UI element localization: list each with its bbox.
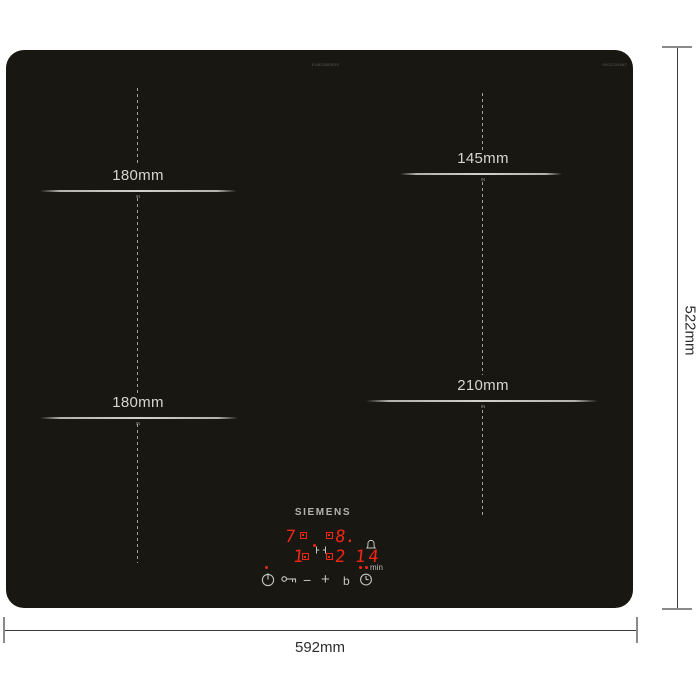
height-dimension-tick-top bbox=[662, 46, 692, 48]
front-right-crosshair-bottom bbox=[482, 410, 483, 517]
rear-right-zone-label: 145mm bbox=[421, 150, 545, 167]
width-dimension-line bbox=[4, 630, 637, 631]
power-indicator-dot bbox=[265, 566, 268, 569]
control-panel: SIEMENS 7 8. 1 2 14 min bbox=[255, 505, 400, 603]
front-right-zone-select-icon bbox=[326, 553, 333, 560]
rear-left-zone-line bbox=[40, 190, 237, 192]
power-icon bbox=[260, 571, 276, 587]
rear-left-zone-marking: IN bbox=[131, 194, 145, 199]
width-dimension-tick-right bbox=[636, 617, 638, 643]
child-lock-key-icon bbox=[281, 573, 299, 585]
timer-indicator-dot bbox=[365, 566, 368, 569]
rear-right-crosshair-top bbox=[482, 93, 483, 150]
product-diagram: EU631BEB1E 9001234567 180mm IN 145mm IN … bbox=[0, 0, 700, 700]
front-right-zone-label: 210mm bbox=[421, 377, 545, 394]
rear-left-level-display: 7 bbox=[284, 529, 296, 546]
front-right-zone-line bbox=[366, 400, 598, 402]
brand-logo: SIEMENS bbox=[283, 507, 363, 518]
front-left-zone-select-icon bbox=[302, 553, 309, 560]
boost-key: b bbox=[343, 575, 350, 587]
timer-clock-icon bbox=[358, 571, 374, 587]
model-code: EU631BEB1E bbox=[312, 62, 340, 67]
plus-key: + bbox=[321, 572, 330, 587]
front-left-zone-marking: IN bbox=[131, 421, 145, 426]
minute-indicator-dot bbox=[359, 566, 362, 569]
front-left-zone-line bbox=[40, 417, 238, 419]
left-crosshair-middle bbox=[137, 198, 138, 393]
rear-left-crosshair-top bbox=[137, 88, 138, 166]
width-dimension-label: 592mm bbox=[258, 639, 382, 656]
rear-right-zone-select-icon bbox=[326, 532, 333, 539]
rear-right-zone-marking: IN bbox=[476, 177, 490, 182]
front-right-level-display: 2 bbox=[334, 549, 346, 566]
rear-left-zone-label: 180mm bbox=[76, 167, 200, 184]
rear-right-level-display: 8. bbox=[334, 529, 357, 546]
width-dimension-tick-left bbox=[3, 617, 5, 643]
minus-key: − bbox=[303, 573, 311, 587]
front-right-zone-marking: IN bbox=[476, 404, 490, 409]
right-crosshair-middle bbox=[482, 182, 483, 375]
height-dimension-tick-bottom bbox=[662, 608, 692, 610]
height-dimension-label: 522mm bbox=[682, 301, 699, 361]
front-left-zone-label: 180mm bbox=[76, 394, 200, 411]
rear-left-zone-select-icon bbox=[300, 532, 307, 539]
height-dimension-line bbox=[677, 47, 678, 609]
corner-code: 9001234567 bbox=[602, 62, 627, 67]
rear-right-zone-line bbox=[400, 173, 562, 175]
front-left-crosshair-bottom bbox=[137, 424, 138, 563]
